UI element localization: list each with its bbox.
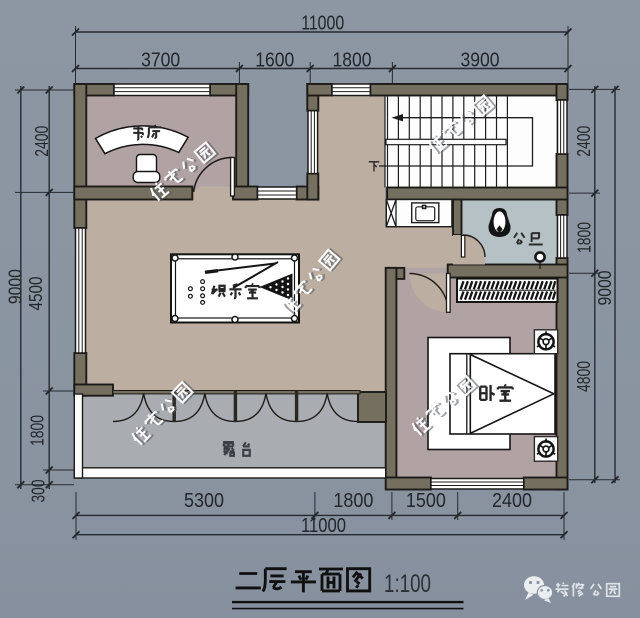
svg-text:300: 300	[29, 480, 49, 503]
svg-text:1800: 1800	[333, 490, 373, 512]
svg-text:11000: 11000	[301, 515, 346, 537]
svg-text:1600: 1600	[255, 50, 294, 72]
svg-text:1:100: 1:100	[384, 570, 431, 598]
svg-text:4500: 4500	[26, 277, 46, 311]
svg-text:2400: 2400	[574, 126, 594, 157]
svg-text:5300: 5300	[184, 490, 224, 512]
svg-text:1800: 1800	[28, 415, 48, 446]
svg-text:1800: 1800	[333, 50, 372, 72]
svg-text:11000: 11000	[301, 12, 344, 34]
svg-text:2400: 2400	[492, 490, 532, 512]
svg-text:3900: 3900	[461, 50, 500, 72]
svg-text:9000: 9000	[6, 269, 26, 304]
svg-text:9000: 9000	[595, 271, 615, 306]
svg-text:1500: 1500	[406, 490, 446, 512]
svg-text:3700: 3700	[141, 50, 180, 72]
svg-text:4800: 4800	[574, 361, 594, 392]
svg-text:1800: 1800	[575, 222, 595, 253]
svg-text:2400: 2400	[32, 126, 52, 157]
